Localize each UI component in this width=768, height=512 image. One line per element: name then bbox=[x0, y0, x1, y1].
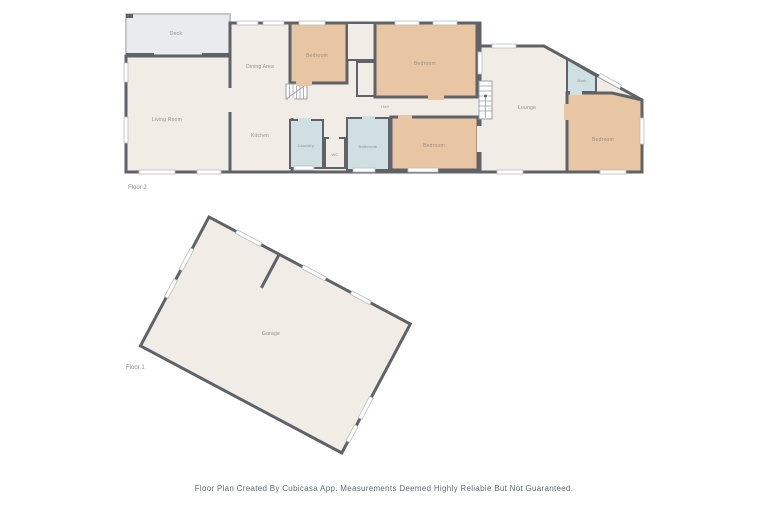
room-bedroom-2 bbox=[375, 23, 477, 97]
window bbox=[139, 170, 175, 174]
room-label-bedroom-4: Bedroom bbox=[592, 137, 614, 143]
room-label-garage: Garage bbox=[262, 331, 280, 337]
room-label-wc: WC bbox=[331, 152, 338, 157]
window bbox=[497, 170, 523, 174]
window bbox=[263, 21, 284, 25]
door-opening bbox=[329, 136, 339, 141]
floor-plan-page: Deck Living Room Dining Area Kitchen Bed… bbox=[0, 0, 768, 512]
floor1-caption: Floor 1 bbox=[126, 365, 145, 371]
window bbox=[478, 52, 482, 74]
room-label-bedroom-2: Bedroom bbox=[414, 61, 436, 67]
room-dining-kitchen bbox=[230, 23, 292, 172]
room-label-bedroom-1: Bedroom bbox=[306, 53, 328, 59]
room-label-dining: Dining Area bbox=[246, 64, 274, 70]
window bbox=[408, 168, 438, 172]
room-label-kitchen: Kitchen bbox=[251, 133, 269, 139]
floor2-caption: Floor 2 bbox=[128, 185, 147, 191]
room-label-bedroom-3: Bedroom bbox=[423, 143, 445, 149]
floor-plan-drawing: Deck Living Room Dining Area Kitchen Bed… bbox=[0, 0, 768, 512]
window bbox=[395, 21, 419, 25]
room-label-living: Living Room bbox=[152, 117, 182, 123]
window bbox=[294, 166, 314, 170]
room-bedroom-4 bbox=[567, 93, 642, 172]
door-opening bbox=[228, 88, 234, 112]
door-opening bbox=[296, 81, 312, 86]
room-label-hall: Hall bbox=[381, 104, 389, 109]
closet bbox=[347, 23, 375, 60]
room-label-bath-2: Bath bbox=[577, 78, 586, 83]
door-opening bbox=[362, 116, 375, 121]
door-opening bbox=[570, 90, 582, 95]
window bbox=[197, 170, 221, 174]
window bbox=[640, 118, 644, 144]
wall-segment bbox=[126, 14, 133, 18]
door-opening bbox=[288, 98, 294, 118]
room-label-laundry: Laundry bbox=[298, 143, 314, 148]
door-opening bbox=[428, 95, 444, 100]
door-opening bbox=[298, 118, 311, 123]
room-living bbox=[126, 56, 232, 172]
floor2-plan: Deck Living Room Dining Area Kitchen Bed… bbox=[124, 14, 644, 174]
window bbox=[124, 63, 128, 82]
room-label-lounge: Lounge bbox=[518, 105, 536, 111]
window bbox=[492, 44, 516, 48]
floor1-plan: Garage bbox=[139, 214, 413, 454]
door-opening bbox=[564, 104, 570, 120]
room-label-deck: Deck bbox=[170, 31, 182, 37]
staircase-icon bbox=[479, 81, 492, 119]
window bbox=[124, 117, 128, 143]
window bbox=[299, 21, 325, 25]
disclaimer-text: Floor Plan Created By Cubicasa App. Meas… bbox=[0, 484, 768, 493]
room-bath-2 bbox=[567, 59, 596, 92]
window bbox=[433, 21, 457, 25]
window bbox=[237, 21, 258, 25]
door-opening bbox=[398, 115, 412, 120]
closet bbox=[357, 62, 375, 96]
staircase-icon bbox=[286, 84, 307, 99]
door-opening bbox=[477, 126, 485, 152]
room-label-bathroom: Bathroom bbox=[359, 144, 378, 149]
window bbox=[600, 170, 626, 174]
window bbox=[353, 168, 375, 172]
